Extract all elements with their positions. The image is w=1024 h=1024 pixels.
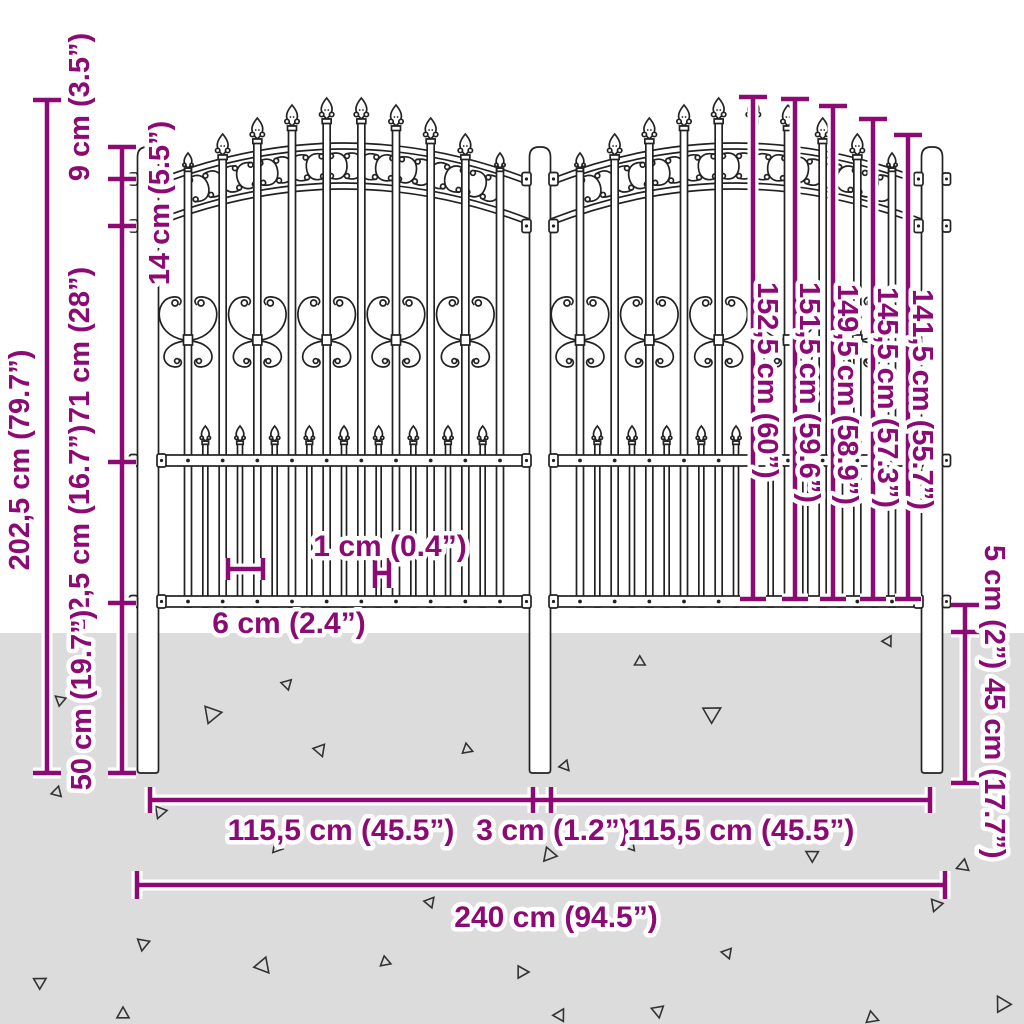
label-post-above-band: 9 cm (3.5”) (64, 33, 96, 181)
fence-dimension-diagram: 202,5 cm (79.7”) 9 cm (3.5”) 14 cm (5.5”… (0, 0, 1024, 1024)
label-below-ground: 50 cm (19.7”) (66, 610, 98, 791)
label-picket-spacing: 6 cm (2.4”) (212, 607, 365, 640)
label-upper-section: 71 cm (28”) (64, 267, 96, 423)
label-band-height: 14 cm (5.5”) (144, 121, 176, 285)
label-lower-section: 42,5 cm (16.7”) (64, 425, 96, 630)
label-center-post-gap: 3 cm (1.2”) (476, 814, 629, 847)
label-left-panel-width: 115,5 cm (45.5”) (228, 814, 455, 847)
label-ground-clearance: 5 cm (2”) (978, 545, 1010, 669)
label-post-underground: 45 cm (17.7”) (978, 678, 1010, 859)
label-picket-thickness: 1 cm (0.4”) (313, 530, 466, 563)
label-picket-height-1: 152,5 cm (60”) (751, 282, 783, 479)
label-right-panel-width: 115,5 cm (45.5”) (628, 814, 855, 847)
label-picket-height-2: 151,5 cm (59.6”) (793, 282, 825, 503)
label-total-height: 202,5 cm (79.7”) (4, 350, 36, 571)
label-picket-height-4: 145,5 cm (57.3”) (871, 287, 903, 508)
label-total-width: 240 cm (94.5”) (454, 901, 657, 934)
label-picket-height-3: 149,5 cm (58.9”) (831, 284, 863, 505)
label-picket-height-5: 141,5 cm (55.7”) (906, 289, 938, 510)
